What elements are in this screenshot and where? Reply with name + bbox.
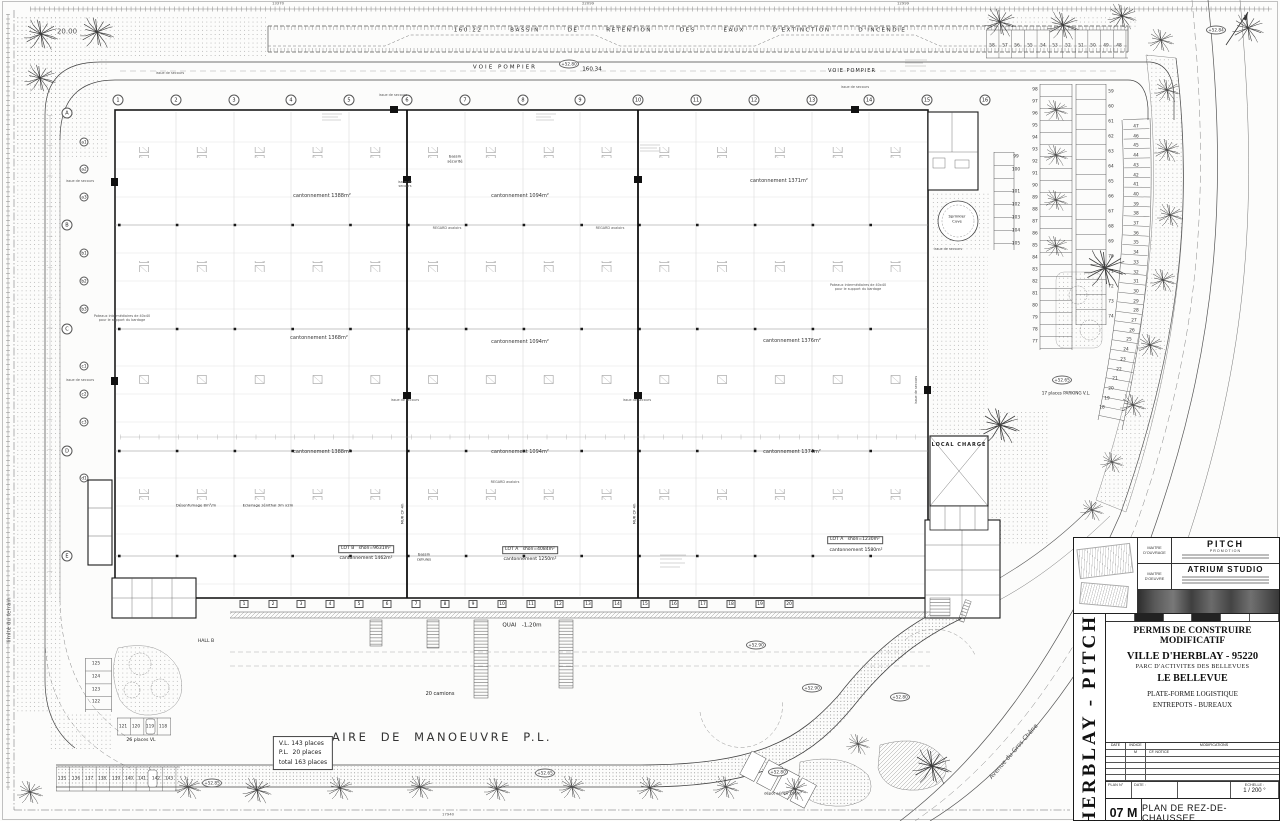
- parking-space-number: 67: [1108, 209, 1113, 214]
- parking-space-number: 35: [1133, 240, 1138, 245]
- dock-number: 19: [756, 600, 765, 608]
- permit-title: PERMIS DE CONSTRUIRE MODIFICATIF: [1106, 622, 1279, 649]
- project-name: LE BELLEVUE: [1106, 671, 1279, 686]
- parking-space-number: 63: [1108, 149, 1113, 154]
- mod-row-date: [1106, 750, 1126, 756]
- date-label: DATE :: [1132, 782, 1178, 798]
- parking-space-number: 97: [1032, 99, 1037, 104]
- parking-space-number: 138: [98, 776, 106, 781]
- parking-space-number: 43: [1133, 163, 1138, 168]
- parking-space-number: 120: [132, 724, 140, 729]
- parking-space-number: 105: [1012, 241, 1020, 246]
- parking-space-number: 29: [1133, 299, 1138, 304]
- parking-space-number: 119: [146, 724, 154, 729]
- parking-space-number: 68: [1108, 224, 1113, 229]
- annotation: limite du terrain: [7, 597, 14, 642]
- parking-space-number: 65: [1108, 179, 1113, 184]
- drawing-sheet: 13370220991299917940 1234567891011121314…: [0, 0, 1280, 821]
- signature-stamp: [1079, 582, 1129, 608]
- parking-space-number: 136: [72, 776, 80, 781]
- parking-space-number: 30: [1133, 289, 1138, 294]
- dock-number: 4: [326, 600, 335, 608]
- zone-label: cantonnement 1388m²: [293, 193, 351, 199]
- parking-space-number: 99: [1013, 154, 1018, 159]
- spot-level: +52.80: [768, 768, 788, 777]
- parking-space-number: 143: [165, 776, 173, 781]
- parking-space-number: 93: [1032, 147, 1037, 152]
- parking-space-number: 73: [1108, 299, 1113, 304]
- parc-title: PARC D'ACTIVITES DES BELLEVUES: [1106, 663, 1279, 671]
- annotation: issue de secours: [914, 376, 918, 404]
- dimension-label: 22099: [582, 2, 594, 7]
- parking-space-number: 102: [1012, 202, 1020, 207]
- dock-number: 18: [727, 600, 736, 608]
- annotation: AIRE DE MANOEUVRE P.L.: [332, 730, 552, 744]
- grid-row-bubble: D: [62, 446, 73, 457]
- parking-space-number: 122: [92, 699, 100, 704]
- annotation: LOT B shon=9631m²: [338, 545, 394, 553]
- grid-row-bubble: B: [62, 220, 73, 231]
- zone-label: cantonnement 1374m²: [763, 449, 821, 455]
- client-name: PITCH: [1172, 540, 1279, 549]
- annotation: issue de secours: [391, 398, 419, 402]
- grid-column-bubble: 12: [749, 95, 760, 106]
- parking-space-number: 64: [1108, 164, 1113, 169]
- parking-space-number: 40: [1133, 192, 1138, 197]
- grid-column-bubble: 10: [633, 95, 644, 106]
- annotation: cantonnement 1462m²: [340, 556, 393, 562]
- parking-space-number: 45: [1133, 143, 1138, 148]
- zone-label: cantonnement 1368m²: [290, 335, 348, 341]
- dock-number: 5: [355, 600, 364, 608]
- parking-space-number: 52: [1065, 43, 1070, 48]
- annotation: 160.22 BASSIN DE RETENTION DES EAUX D'EX…: [454, 28, 906, 35]
- annotation: Eclairage zénithal 3m x2m: [243, 504, 294, 509]
- mod-row-text: CF. NOTICE: [1146, 750, 1279, 756]
- annotation: issue de secours: [623, 398, 651, 402]
- grid-subrow-bubble: a3: [80, 193, 89, 202]
- parking-space-number: 139: [112, 776, 120, 781]
- parking-space-number: 27: [1131, 318, 1136, 323]
- grid-column-bubble: 11: [691, 95, 702, 106]
- parking-space-number: 103: [1012, 215, 1020, 220]
- grid-column-bubble: 3: [229, 95, 240, 106]
- annotation: 17 places PARKING V.L.: [1042, 390, 1090, 395]
- parking-space-number: 90: [1032, 183, 1037, 188]
- architect-role-label: MAITRE D'OEUVRE: [1138, 564, 1172, 589]
- dock-number: 8: [441, 600, 450, 608]
- annotation: Désenfumage 8m²/m: [176, 504, 216, 509]
- info-spare-cell: [1178, 782, 1231, 798]
- program-line2: ENTREPOTS - BUREAUX: [1106, 700, 1279, 711]
- parking-space-number: 53: [1052, 43, 1057, 48]
- parking-space-number: 34: [1133, 250, 1138, 255]
- parking-space-number: 88: [1032, 207, 1037, 212]
- zone-label: cantonnement 1094m²: [491, 193, 549, 199]
- parking-space-number: 61: [1108, 119, 1113, 124]
- annotation: issue de secours: [66, 378, 94, 382]
- parking-space-number: 49: [1103, 43, 1108, 48]
- parking-space-number: 55: [1027, 43, 1032, 48]
- dock-number: 17: [699, 600, 708, 608]
- parking-space-number: 46: [1133, 134, 1138, 139]
- parking-space-number: 51: [1078, 43, 1083, 48]
- grid-subrow-bubble: c1: [80, 362, 89, 371]
- parking-space-number: 123: [92, 687, 100, 692]
- client-subtitle: PROMOTION: [1172, 549, 1279, 553]
- spot-level: +52.90: [746, 641, 766, 650]
- annotation: 20 camions: [426, 691, 455, 697]
- modifications-table: DATE INDICE MODIFICATIONS M CF. NOTICE: [1106, 742, 1279, 781]
- address-placeholder: [1182, 557, 1269, 559]
- dock-number: 10: [498, 600, 507, 608]
- project-photo: [1138, 590, 1279, 613]
- annotation: Avenue du Gros Chêne: [988, 723, 1040, 781]
- grid-subrow-bubble: b3: [80, 305, 89, 314]
- grid-subrow-bubble: b2: [80, 277, 89, 286]
- annotation: issue de secours: [156, 71, 184, 75]
- parking-space-number: 91: [1032, 171, 1037, 176]
- sheet-title: PLAN DE REZ-DE-CHAUSSEE: [1142, 799, 1279, 821]
- parking-space-number: 94: [1032, 135, 1037, 140]
- spot-level: +52.80: [559, 60, 579, 69]
- grid-subrow-bubble: d1: [80, 474, 89, 483]
- annotation: cantonnement 1580m²: [830, 548, 883, 554]
- parking-space-number: 135: [58, 776, 66, 781]
- grid-column-bubble: 1: [113, 95, 124, 106]
- annotation: LOT A shon=4084m²: [502, 546, 558, 554]
- parking-space-number: 71: [1108, 269, 1113, 274]
- parking-space-number: 26: [1129, 328, 1134, 333]
- client-firm: PITCH PROMOTION: [1172, 538, 1279, 563]
- parking-space-number: 41: [1133, 182, 1138, 187]
- title-block: MAITRE D'OUVRAGE PITCH PROMOTION MAITRE …: [1073, 537, 1280, 821]
- scale-label: ECHELLE :: [1245, 783, 1264, 787]
- program-line1: PLATE-FORME LOGISTIQUE: [1106, 689, 1279, 700]
- parking-space-number: 92: [1032, 159, 1037, 164]
- annotation: VOIE POMPIER: [828, 68, 876, 74]
- dock-number: 1: [240, 600, 249, 608]
- info-strip: PLAN N° DATE : ECHELLE : 1 / 200 °: [1106, 781, 1279, 798]
- parking-space-number: 121: [119, 724, 127, 729]
- project-side-title: HERBLAY - PITCH: [1074, 614, 1106, 821]
- grid-column-bubble: 15: [922, 95, 933, 106]
- annotation: REGARD avaloirs: [491, 480, 520, 484]
- parking-space-number: 96: [1032, 111, 1037, 116]
- parking-space-number: 48: [1116, 43, 1121, 48]
- dock-number: 2: [269, 600, 278, 608]
- parking-space-number: 81: [1032, 291, 1037, 296]
- annotation: 160.34: [582, 67, 602, 74]
- parking-space-number: 21: [1112, 376, 1117, 381]
- grid-subrow-bubble: a2: [80, 165, 89, 174]
- annotation: V.L. 143 places P.L. 20 places total 163…: [273, 736, 333, 770]
- parking-space-number: 72: [1108, 284, 1113, 289]
- grid-row-bubble: A: [62, 108, 73, 119]
- parking-space-number: 50: [1090, 43, 1095, 48]
- annotation: Poteaux intermédiaires de 40x40 pour le …: [94, 314, 150, 323]
- dock-number: 12: [555, 600, 564, 608]
- parking-space-number: 28: [1133, 308, 1138, 313]
- scale-cell: ECHELLE : 1 / 200 °: [1231, 782, 1279, 798]
- parking-space-number: 33: [1133, 260, 1138, 265]
- annotation: REGARD avaloirs: [433, 226, 462, 230]
- annotation: issue de secours: [398, 180, 412, 189]
- annotation: issue de secours: [66, 179, 94, 183]
- parking-space-number: 83: [1032, 267, 1037, 272]
- dock-number: 6: [383, 600, 392, 608]
- parking-space-number: 101: [1012, 189, 1020, 194]
- dock-number: 11: [527, 600, 536, 608]
- annotation: HALL B: [198, 639, 214, 645]
- scale-value: 1 / 200 °: [1243, 788, 1265, 794]
- parking-space-number: 59: [1108, 89, 1113, 94]
- grid-subrow-bubble: c3: [80, 418, 89, 427]
- dock-number: 16: [670, 600, 679, 608]
- annotation: bassin cellules: [417, 552, 431, 561]
- spot-level: +52.65: [1052, 376, 1072, 385]
- grid-column-bubble: 2: [171, 95, 182, 106]
- sheet-number: 07 M: [1106, 799, 1142, 821]
- spot-level: +52.65: [535, 769, 555, 778]
- address-placeholder: [1182, 576, 1269, 578]
- annotation: dépôt aérien 130m²: [764, 792, 802, 797]
- program: PLATE-FORME LOGISTIQUE ENTREPOTS - BUREA…: [1106, 686, 1279, 711]
- parking-space-number: 70: [1108, 254, 1113, 259]
- grid-column-bubble: 13: [807, 95, 818, 106]
- dock-number: 15: [641, 600, 650, 608]
- annotation: LOT A shon=1230m²: [827, 536, 883, 544]
- parking-space-number: 74: [1108, 314, 1113, 319]
- parking-space-number: 124: [92, 674, 100, 679]
- annotation: Poteaux intermédiaires de 40x40 pour le …: [830, 283, 886, 292]
- annotation: MUR CF 4h: [633, 504, 638, 525]
- dock-number: 3: [297, 600, 306, 608]
- architect-firm: ATRIUM STUDIO: [1172, 564, 1279, 589]
- parking-space-number: 23: [1120, 357, 1125, 362]
- annotation: QUAI -1,20m: [502, 623, 541, 630]
- plan-no-label: PLAN N°: [1106, 782, 1132, 798]
- parking-space-number: 78: [1032, 327, 1037, 332]
- annotation: 26 places VL: [126, 738, 155, 744]
- mod-header-date: DATE: [1106, 743, 1126, 749]
- parking-space-number: 69: [1108, 239, 1113, 244]
- client-role-label: MAITRE D'OUVRAGE: [1138, 538, 1172, 563]
- mod-row-indice: M: [1126, 750, 1146, 756]
- parking-space-number: 36: [1133, 231, 1138, 236]
- grid-column-bubble: 14: [864, 95, 875, 106]
- parking-space-number: 56: [1014, 43, 1019, 48]
- parking-space-number: 77: [1032, 339, 1037, 344]
- parking-space-number: 140: [125, 776, 133, 781]
- annotation: 20.00: [57, 28, 77, 37]
- dock-number: 7: [412, 600, 421, 608]
- mod-header-indice: INDICE: [1126, 743, 1146, 749]
- dimension-label: 17940: [442, 813, 454, 818]
- parking-space-number: 125: [92, 661, 100, 666]
- grid-subrow-bubble: b1: [80, 249, 89, 258]
- parking-space-number: 47: [1133, 124, 1138, 129]
- city-title: VILLE D'HERBLAY - 95220: [1106, 649, 1279, 663]
- parking-space-number: 100: [1012, 167, 1020, 172]
- dock-number: 9: [469, 600, 478, 608]
- address-placeholder: [1182, 579, 1269, 581]
- mod-header-title: MODIFICATIONS: [1146, 743, 1279, 749]
- signature-stamp: [1076, 543, 1133, 579]
- annotation: MUR CF 4h: [401, 504, 406, 525]
- zone-label: cantonnement 1094m²: [491, 339, 549, 345]
- parking-space-number: 60: [1108, 104, 1113, 109]
- parking-space-number: 25: [1126, 337, 1131, 342]
- grid-column-bubble: 9: [575, 95, 586, 106]
- parking-space-number: 19: [1104, 396, 1109, 401]
- grid-column-bubble: 5: [344, 95, 355, 106]
- address-placeholder: [1182, 582, 1269, 584]
- spot-level: +52.85: [202, 779, 222, 788]
- parking-space-number: 54: [1040, 43, 1045, 48]
- address-placeholder: [1182, 554, 1269, 556]
- parking-space-number: 57: [1002, 43, 1007, 48]
- annotation: issue de secours: [841, 85, 869, 89]
- dock-number: 14: [613, 600, 622, 608]
- stamp-area: [1074, 538, 1138, 613]
- parking-space-number: 84: [1032, 255, 1037, 260]
- annotation: VOIE POMPIER: [473, 65, 537, 72]
- parking-space-number: 20: [1108, 386, 1113, 391]
- spot-level: +52.80: [890, 693, 910, 702]
- parking-space-number: 66: [1108, 194, 1113, 199]
- parking-space-number: 24: [1123, 347, 1128, 352]
- dimension-label: 13370: [272, 2, 284, 7]
- parking-space-number: 104: [1012, 228, 1020, 233]
- parking-space-number: 18: [1099, 405, 1104, 410]
- zone-label: cantonnement 1371m²: [750, 178, 808, 184]
- zone-label: cantonnement 1094m²: [491, 449, 549, 455]
- parking-space-number: 79: [1032, 315, 1037, 320]
- annotation: cantonnement 1250m²: [504, 557, 557, 563]
- grid-column-bubble: 4: [286, 95, 297, 106]
- annotation: bassin sécurité: [447, 154, 462, 163]
- parking-space-number: 31: [1133, 279, 1138, 284]
- parking-space-number: 87: [1032, 219, 1037, 224]
- parking-space-number: 39: [1133, 202, 1138, 207]
- parking-space-number: 85: [1032, 243, 1037, 248]
- grid-row-bubble: E: [62, 551, 73, 562]
- parking-space-number: 44: [1133, 153, 1138, 158]
- grid-row-bubble: C: [62, 324, 73, 335]
- parking-space-number: 141: [138, 776, 146, 781]
- grid-column-bubble: 7: [460, 95, 471, 106]
- zone-label: cantonnement 1376m²: [763, 338, 821, 344]
- parking-space-number: 62: [1108, 134, 1113, 139]
- annotation: LOCAL CHARGE: [932, 442, 987, 448]
- grid-subrow-bubble: a1: [80, 138, 89, 147]
- parking-space-number: 82: [1032, 279, 1037, 284]
- parking-space-number: 89: [1032, 195, 1037, 200]
- spot-level: +52.84: [1206, 26, 1226, 35]
- parking-space-number: 137: [85, 776, 93, 781]
- grid-column-bubble: 8: [518, 95, 529, 106]
- annotation: issue de secours: [934, 247, 962, 251]
- architect-name: ATRIUM STUDIO: [1172, 566, 1279, 575]
- spot-level: +52.90: [802, 684, 822, 693]
- parking-space-number: 37: [1133, 221, 1138, 226]
- parking-space-number: 86: [1032, 231, 1037, 236]
- parking-space-number: 22: [1116, 367, 1121, 372]
- dimension-label: 12999: [897, 2, 909, 7]
- dock-number: 13: [584, 600, 593, 608]
- parking-space-number: 32: [1133, 270, 1138, 275]
- parking-space-number: 118: [159, 724, 167, 729]
- grid-subrow-bubble: c2: [80, 390, 89, 399]
- parking-space-number: 98: [1032, 87, 1037, 92]
- grid-column-bubble: 16: [980, 95, 991, 106]
- dock-number: 20: [785, 600, 794, 608]
- zone-label: cantonnement 1388m²: [293, 449, 351, 455]
- parking-space-number: 80: [1032, 303, 1037, 308]
- phase-strip: [1106, 614, 1279, 622]
- annotation: issue de secours: [379, 93, 407, 97]
- parking-space-number: 58: [989, 43, 994, 48]
- parking-space-number: 38: [1133, 211, 1138, 216]
- parking-space-number: 142: [152, 776, 160, 781]
- annotation: REGARD avaloirs: [596, 226, 625, 230]
- parking-space-number: 42: [1133, 173, 1138, 178]
- parking-space-number: 95: [1032, 123, 1037, 128]
- annotation: Sprinkler Cuve: [949, 214, 966, 223]
